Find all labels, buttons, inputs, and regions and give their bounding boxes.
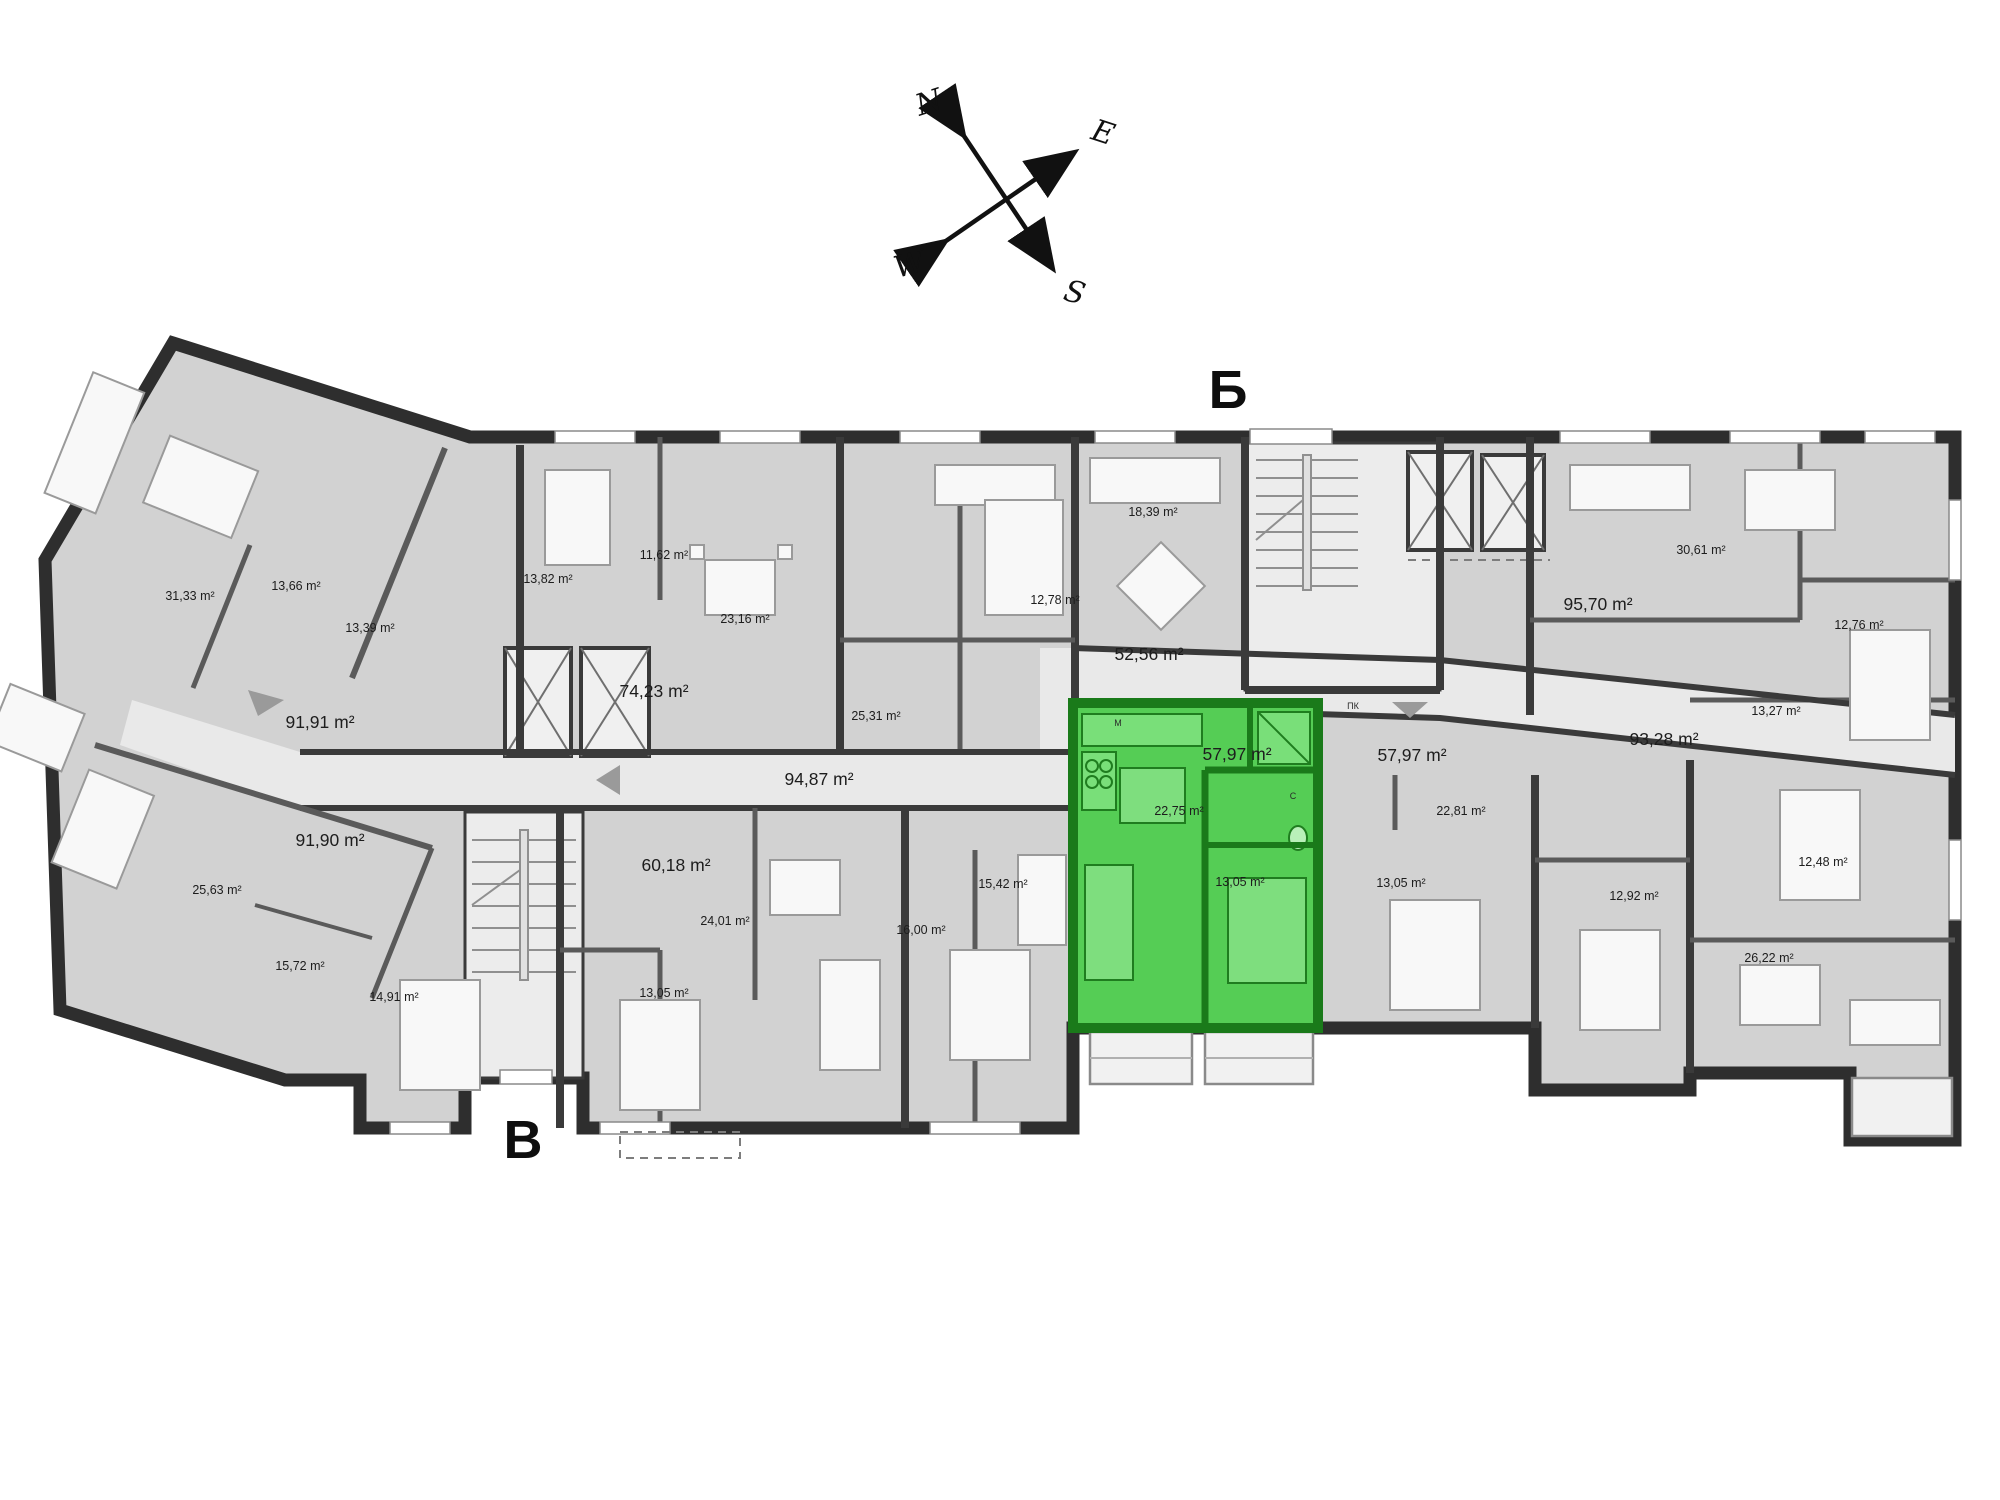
sofa [1085, 865, 1133, 980]
area-label: 13,66 m² [271, 579, 320, 593]
area-label: 16,00 m² [896, 923, 945, 937]
area-label: 12,48 m² [1798, 855, 1847, 869]
area-label: 57,97 m² [1202, 744, 1271, 764]
bed [1228, 878, 1306, 983]
appliance-mark: М [1114, 718, 1122, 728]
area-label: 12,78 m² [1030, 593, 1079, 607]
entrance-v-opening [500, 1070, 552, 1084]
area-label: 11,62 m² [640, 548, 688, 562]
area-label: 24,01 m² [700, 914, 749, 928]
entrance-label-v: В [504, 1110, 543, 1170]
area-label: 60,18 m² [641, 855, 710, 875]
area-label: 26,22 m² [1744, 951, 1793, 965]
area-label: 91,91 m² [285, 712, 354, 732]
area-label: 22,81 m² [1436, 804, 1485, 818]
compass-north-label: N [910, 82, 948, 124]
entrance-b-opening [1250, 429, 1332, 444]
floor-plan-page: N E W S Б В 31,33 m²13,66 m²13,39 m²91,9… [0, 0, 2000, 1500]
compass-west-label: W [890, 243, 931, 285]
compass: N E W S [890, 82, 1119, 313]
area-label: 94,87 m² [784, 769, 853, 789]
area-label: 57,97 m² [1377, 745, 1446, 765]
highlighted-apartment[interactable] [1073, 703, 1318, 1028]
area-label: 15,72 m² [275, 959, 324, 973]
area-label: 13,27 m² [1751, 704, 1800, 718]
compass-east-label: E [1086, 113, 1119, 153]
area-label: 13,05 m² [639, 986, 688, 1000]
area-label: 25,63 m² [192, 883, 241, 897]
area-label: 93,28 m² [1629, 729, 1698, 749]
corridor [300, 752, 1073, 808]
area-label: 52,56 m² [1114, 644, 1183, 664]
compass-we-arrow [943, 154, 1072, 243]
area-label: 13,39 m² [345, 621, 394, 635]
appliance-mark: С [1290, 791, 1297, 801]
appliance-mark: ПК [1347, 701, 1359, 711]
area-label: 14,91 m² [369, 990, 418, 1004]
compass-south-label: S [1060, 273, 1089, 312]
area-label: 31,33 m² [165, 589, 214, 603]
area-label: 12,76 m² [1834, 618, 1883, 632]
area-label: 13,05 m² [1215, 875, 1264, 889]
area-label: 95,70 m² [1563, 594, 1632, 614]
area-label: 30,61 m² [1676, 543, 1725, 557]
area-label: 91,90 m² [295, 830, 364, 850]
area-label: 13,82 m² [523, 572, 572, 586]
area-label: 25,31 m² [851, 709, 900, 723]
kitchen-counter [1082, 714, 1202, 746]
entrance-label-b: Б [1209, 360, 1248, 420]
area-label: 22,75 m² [1154, 804, 1203, 818]
area-label: 12,92 m² [1609, 889, 1658, 903]
area-label: 74,23 m² [619, 681, 688, 701]
floor-plan: N E W S Б В 31,33 m²13,66 m²13,39 m²91,9… [0, 0, 2000, 1500]
area-label: 23,16 m² [720, 612, 769, 626]
area-label: 13,05 m² [1376, 876, 1425, 890]
building [0, 343, 1961, 1158]
area-label: 15,42 m² [978, 877, 1027, 891]
area-label: 18,39 m² [1128, 505, 1177, 519]
